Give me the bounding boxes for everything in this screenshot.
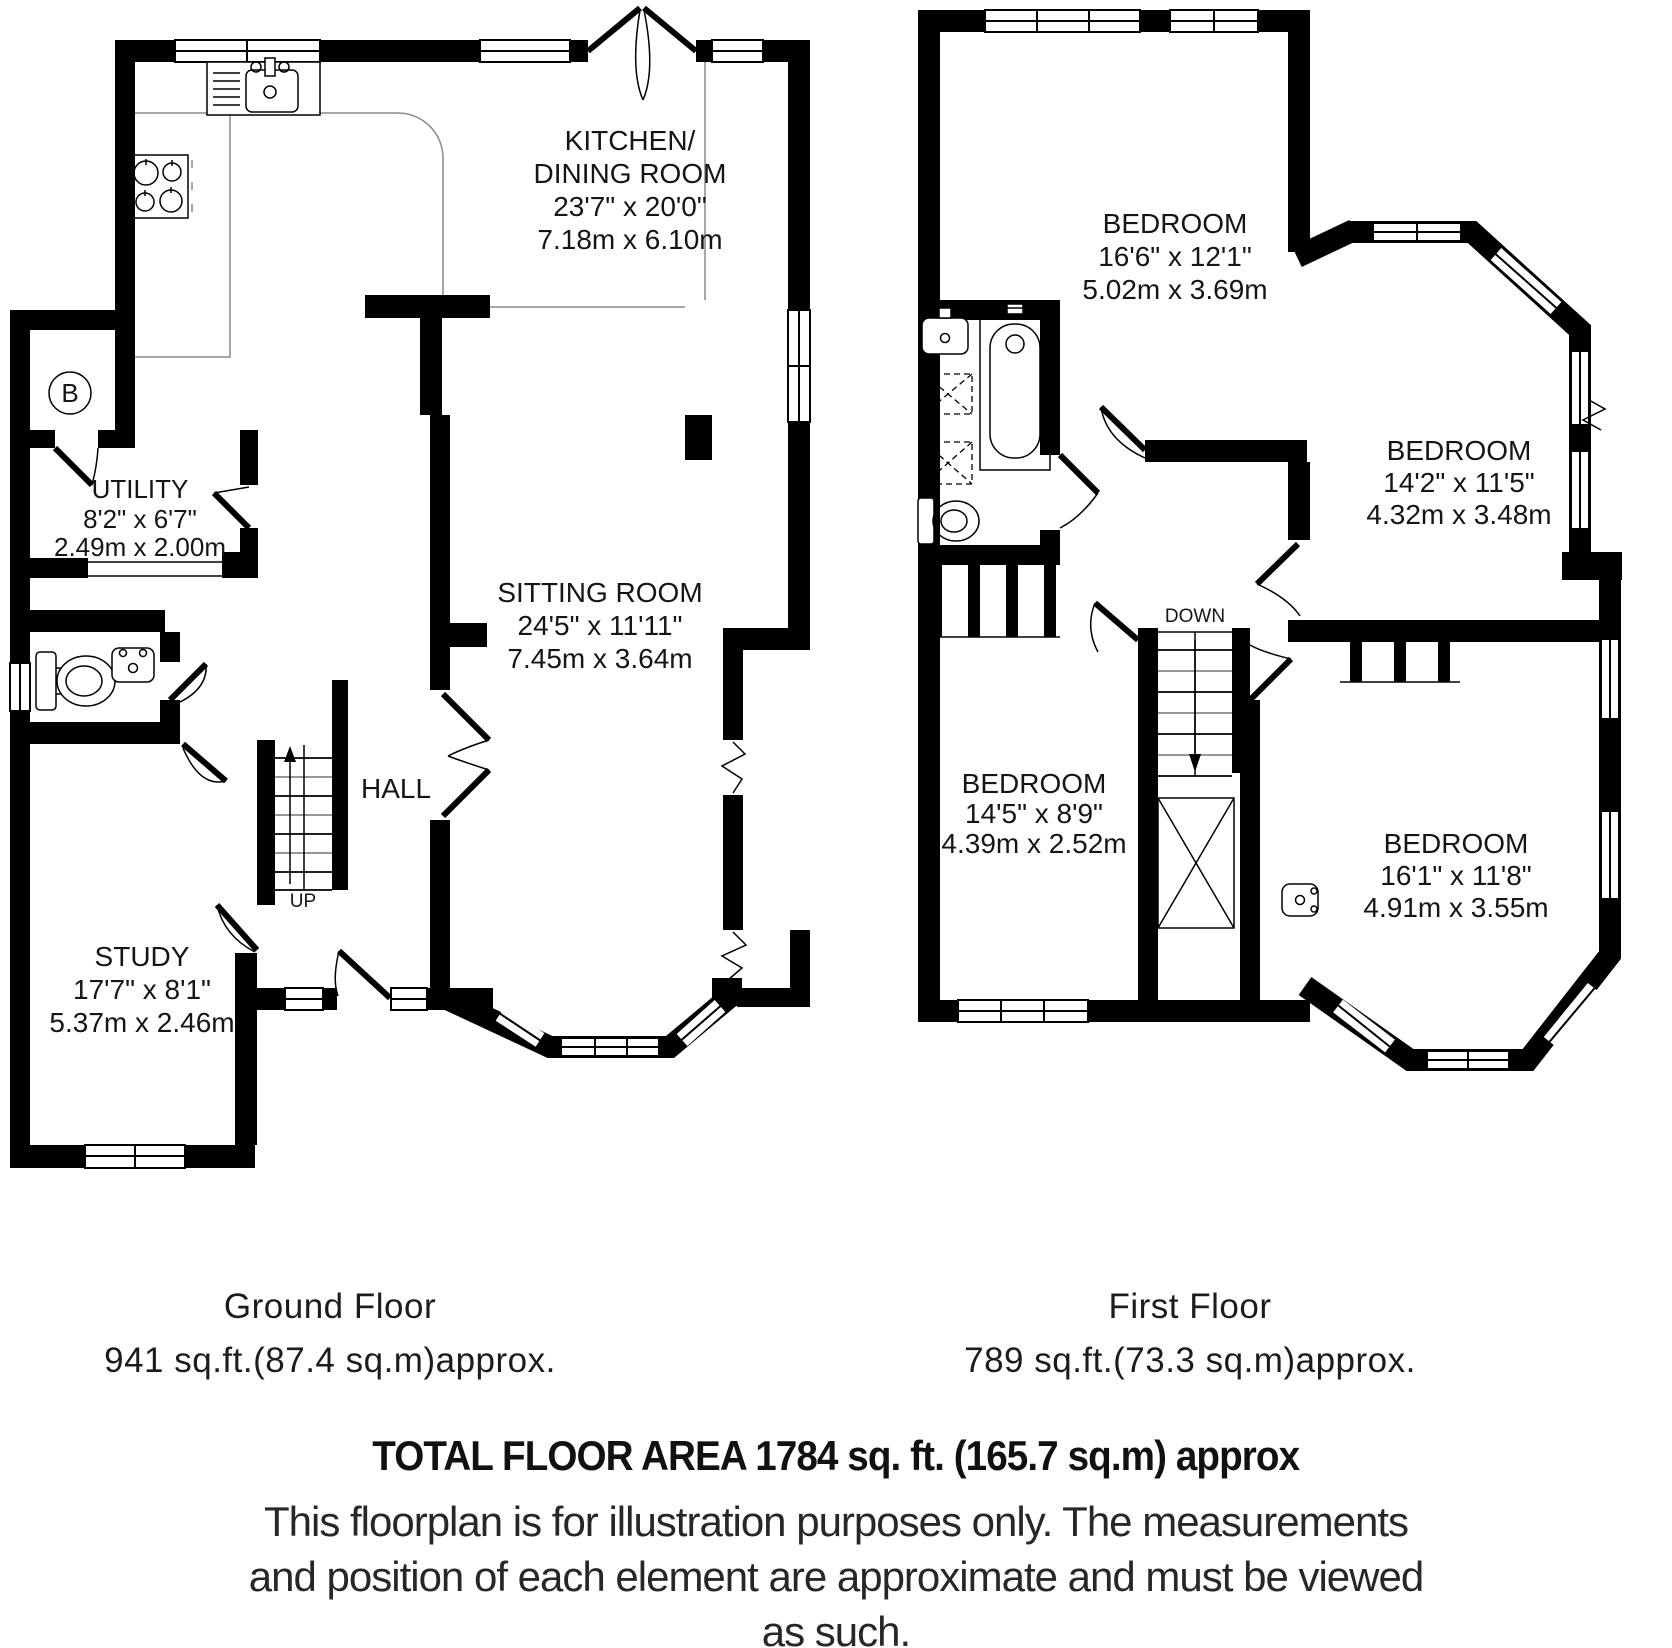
ground-floor-caption-area: 941 sq.ft.(87.4 sq.m)approx. [30,1334,630,1388]
kitchen-dims-imperial: 23'7" x 20'0" [553,191,707,222]
up-arrow-icon [284,746,296,762]
study-dims-metric: 5.37m x 2.46m [49,1007,234,1038]
first-floor-caption-area: 789 sq.ft.(73.3 sq.m)approx. [890,1334,1490,1388]
bedroom-bottom-right-label: BEDROOM [1384,828,1529,859]
boiler-label: B [61,378,78,408]
kitchen-label-line1: KITCHEN/ [565,125,696,156]
sitting-room-dims-imperial: 24'5" x 11'11" [518,610,683,641]
bedroom-bottom-left-label: BEDROOM [962,768,1107,799]
kitchen-sink-icon [207,58,320,115]
disclaimer-line-2: and position of each element are approxi… [0,1549,1672,1604]
utility-dims-imperial: 8'2" x 6'7" [83,504,197,534]
wc-toilet-icon [36,652,115,710]
loft-hatch-icon [1158,798,1234,928]
stairs-down-label: DOWN [1165,606,1225,627]
ground-floor-labels: KITCHEN/ DINING ROOM 23'7" x 20'0" 7.18m… [49,125,726,1038]
floorplans-svg: B KITCHEN/ DINING ROOM 23'7" x 20'0" 7.1… [0,0,1672,1270]
boiler-icon: B [49,372,91,414]
stairs-down [1158,632,1232,776]
bathroom-toilet-icon [918,498,979,544]
ground-floor-caption-title: Ground Floor [30,1280,630,1334]
stairs-up-label: UP [290,891,316,912]
study-dims-imperial: 17'7" x 8'1" [73,974,211,1005]
study-label: STUDY [95,941,190,972]
utility-label: UTILITY [92,474,189,504]
bath-icon [980,304,1050,470]
stairs-up [275,745,332,890]
floorplan-canvas: B KITCHEN/ DINING ROOM 23'7" x 20'0" 7.1… [0,0,1672,1648]
bedroom-basin-icon [1282,884,1318,916]
wc-basin-icon [112,648,154,682]
utility-dims-metric: 2.49m x 2.00m [54,532,226,562]
disclaimer-line-3: as such. [0,1604,1672,1648]
bedroom-right-dims-imperial: 14'2" x 11'5" [1383,467,1534,498]
bedroom-top-dims-imperial: 16'6" x 12'1" [1098,241,1252,272]
kitchen-label-line2: DINING ROOM [534,158,727,189]
first-floor-caption-title: First Floor [890,1280,1490,1334]
bathroom-basin-icon [922,308,968,354]
bedroom-bottom-left-dims-imperial: 14'5" x 8'9" [965,798,1103,829]
bedroom-top-label: BEDROOM [1103,208,1248,239]
disclaimer-line-1: This floorplan is for illustration purpo… [0,1494,1672,1549]
hob-icon [130,155,192,218]
bedroom-right-dims-metric: 4.32m x 3.48m [1366,499,1551,530]
total-floor-area-text: TOTAL FLOOR AREA 1784 sq. ft. (165.7 sq.… [373,1432,1300,1480]
bedroom-bottom-right-dims-imperial: 16'1" x 11'8" [1380,860,1531,891]
bedroom-top-dims-metric: 5.02m x 3.69m [1082,274,1267,305]
ground-floor-plan: B KITCHEN/ DINING ROOM 23'7" x 20'0" 7.1… [10,8,810,1168]
bedroom-bottom-right-dims-metric: 4.91m x 3.55m [1363,892,1548,923]
ground-floor-caption: Ground Floor 941 sq.ft.(87.4 sq.m)approx… [30,1280,630,1388]
first-floor-caption: First Floor 789 sq.ft.(73.3 sq.m)approx. [890,1280,1490,1388]
sitting-room-label: SITTING ROOM [497,577,702,608]
sitting-room-dims-metric: 7.45m x 3.64m [507,643,692,674]
total-floor-area: TOTAL FLOOR AREA 1784 sq. ft. (165.7 sq.… [0,1432,1672,1480]
kitchen-dims-metric: 7.18m x 6.10m [537,224,722,255]
hall-label: HALL [361,773,431,804]
down-arrow-icon [1189,754,1201,772]
first-floor-plan: BEDROOM 16'6" x 12'1" 5.02m x 3.69m BEDR… [918,10,1622,1068]
bedroom-bottom-left-dims-metric: 4.39m x 2.52m [941,828,1126,859]
bedroom-right-label: BEDROOM [1387,435,1532,466]
disclaimer: This floorplan is for illustration purpo… [0,1494,1672,1648]
